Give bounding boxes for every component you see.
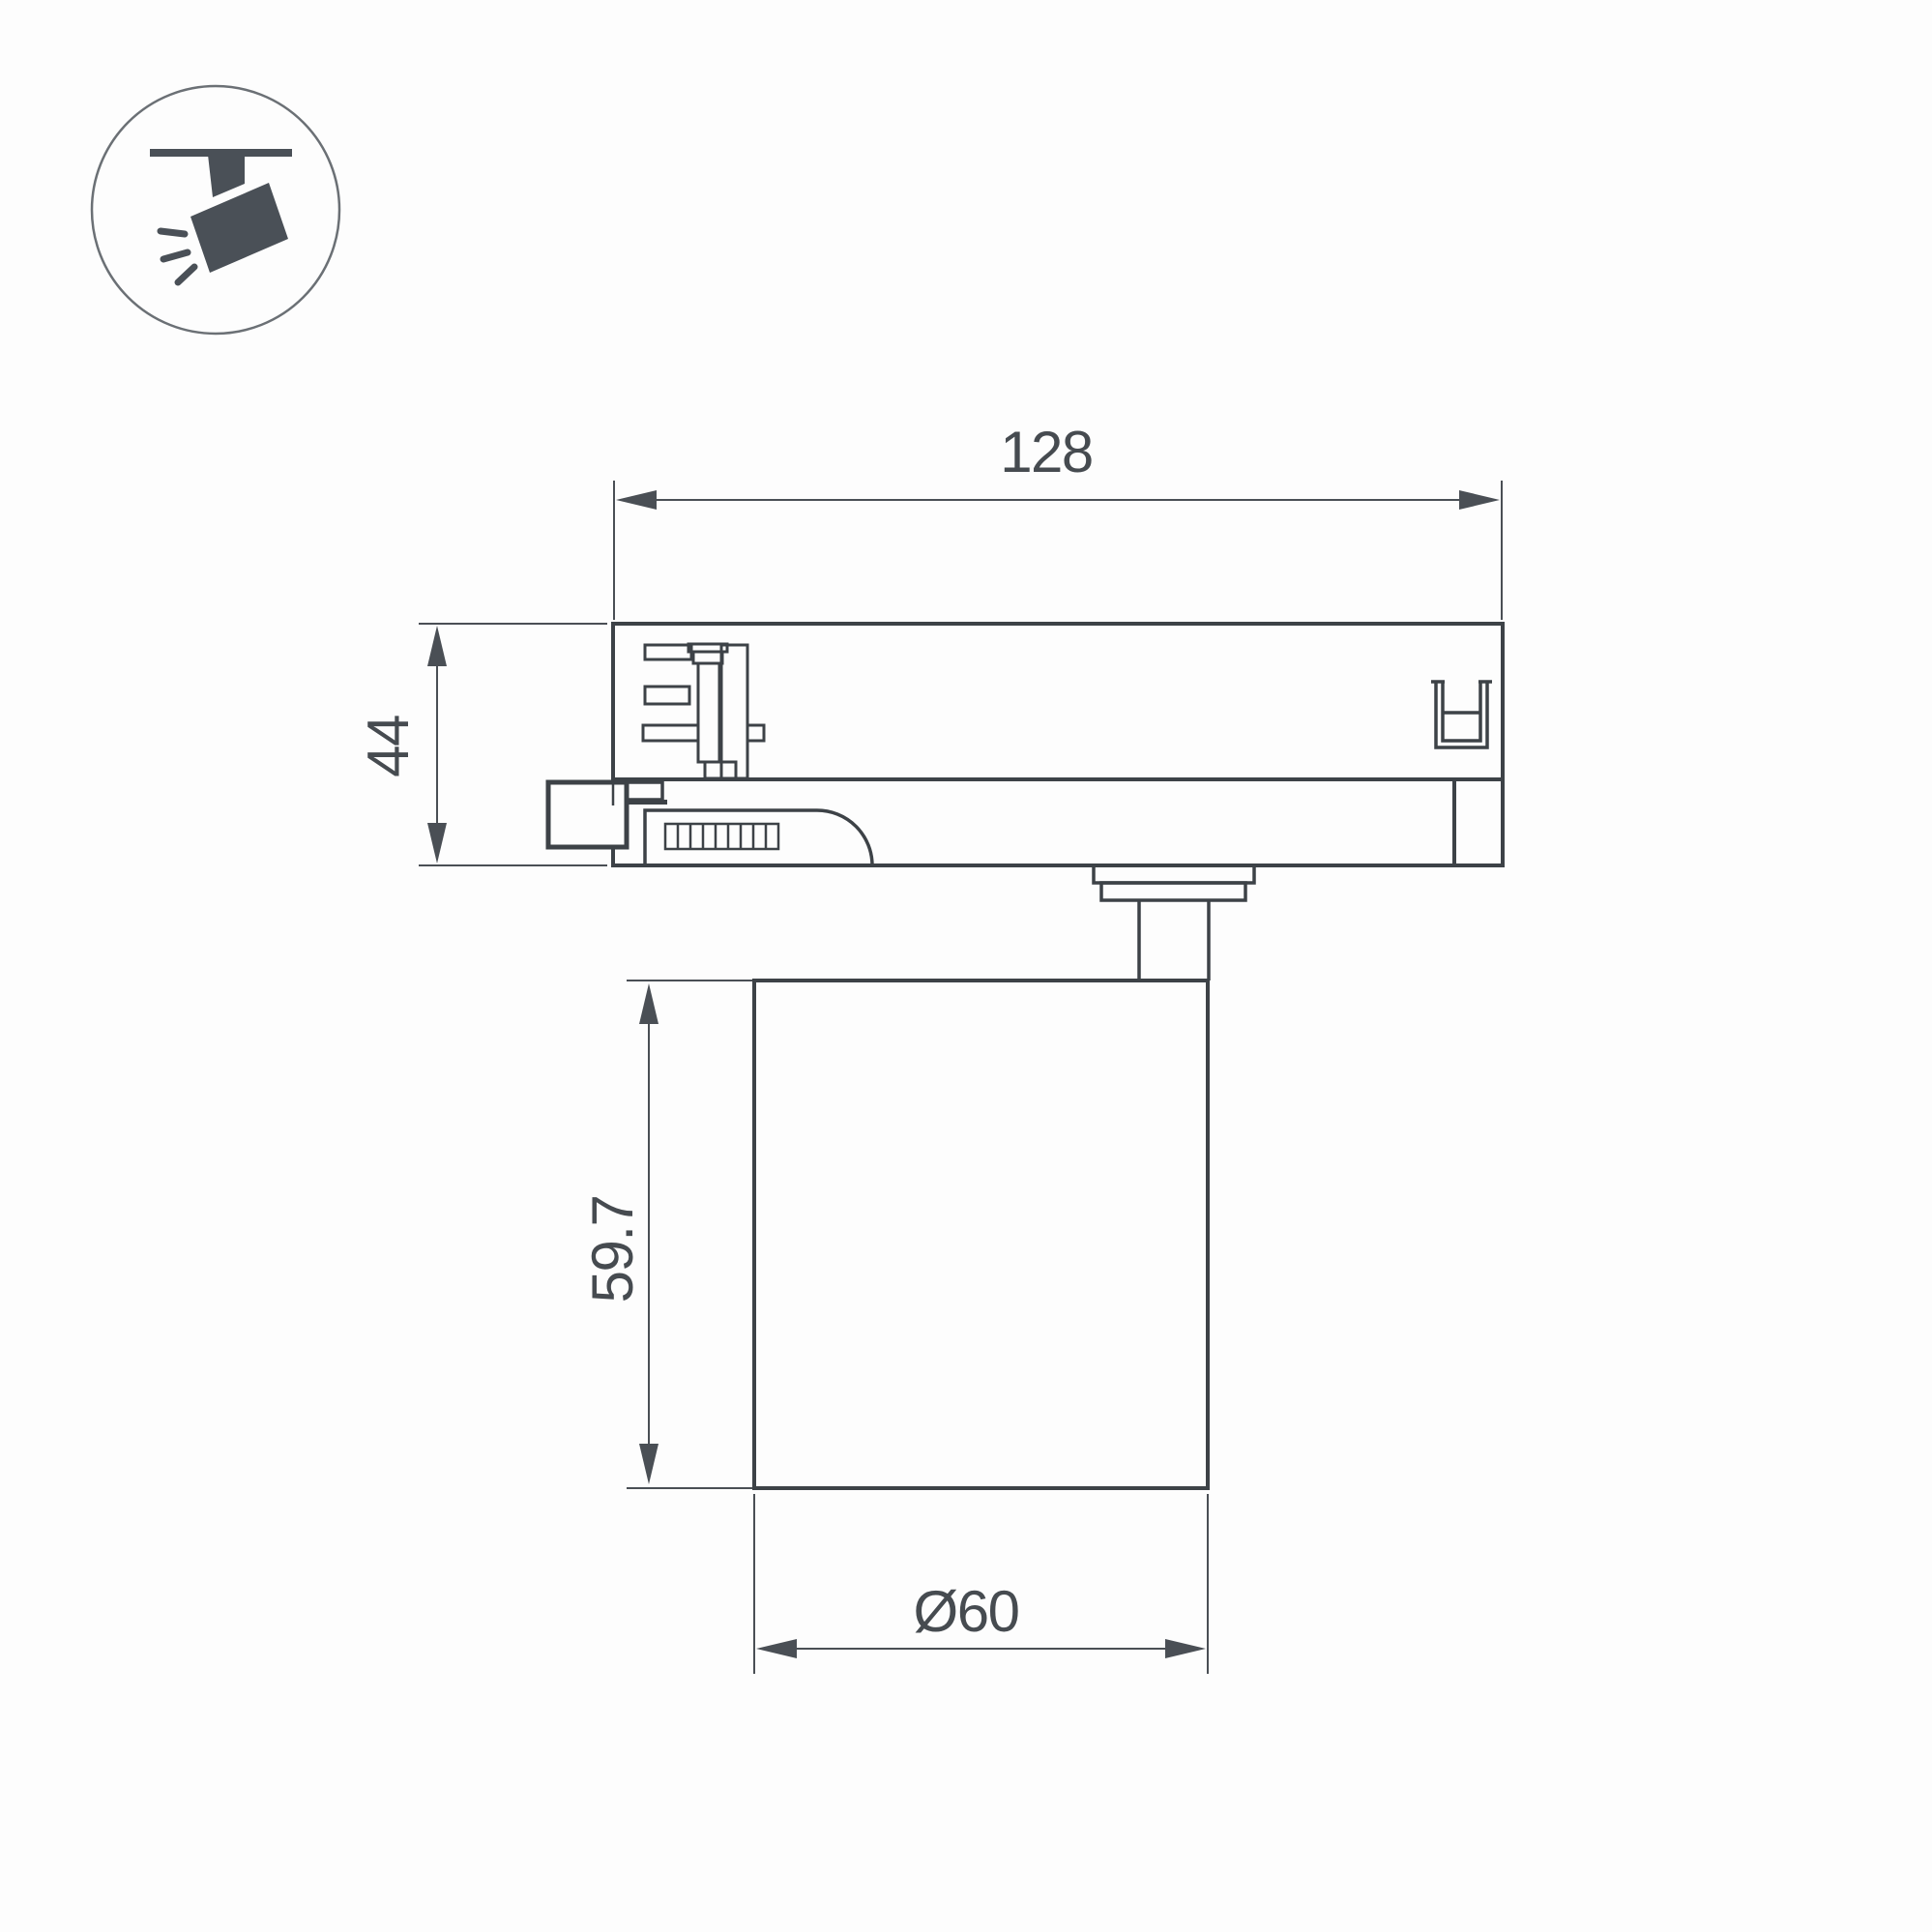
arrowhead-right	[1165, 1639, 1206, 1658]
dimension-label-body-height: 59.7	[580, 1196, 645, 1303]
arrowhead-down	[639, 1444, 659, 1484]
dimension-label-adapter-width: 128	[1000, 420, 1093, 484]
arrowhead-up	[639, 983, 659, 1024]
contact-tooth	[645, 687, 689, 704]
adapter-plate	[613, 779, 1503, 865]
contact-tooth	[747, 725, 764, 741]
latch-bar	[627, 800, 667, 805]
dimension-body-diameter: Ø60	[754, 1494, 1208, 1674]
screw-cap	[693, 652, 722, 663]
latch-notch	[627, 782, 662, 800]
flange-tier	[1101, 883, 1245, 900]
contact-block	[643, 644, 764, 778]
dimension-lines	[614, 481, 1502, 620]
dimension-label-body-diameter: Ø60	[914, 1579, 1019, 1644]
dimension-body-height: 59.7	[580, 981, 752, 1488]
mounting-flange	[1094, 865, 1254, 981]
dimension-label-adapter-height: 44	[356, 716, 421, 777]
arrowhead-left	[756, 1639, 797, 1658]
flange-tier	[1094, 865, 1254, 883]
lamp-cylinder	[754, 981, 1208, 1488]
arrowhead-left	[616, 490, 657, 510]
latch-body	[548, 782, 627, 847]
drawing-page: 128 44 59.7 Ø60	[0, 0, 1932, 1932]
technical-drawing: 128 44 59.7 Ø60	[0, 0, 1932, 1932]
track-adapter	[548, 624, 1503, 981]
arrowhead-up	[427, 626, 447, 666]
ribbed-grip	[665, 824, 778, 849]
arrowhead-right	[1459, 490, 1500, 510]
contact-tooth	[645, 645, 691, 659]
dimension-lines	[627, 981, 752, 1488]
contact-column	[721, 645, 747, 778]
screw-shaft	[698, 663, 719, 762]
contact-tooth	[643, 725, 698, 741]
release-latch	[548, 782, 667, 847]
track-spotlight-icon	[92, 86, 339, 334]
dimension-adapter-width: 128	[614, 420, 1502, 620]
arrowhead-down	[427, 823, 447, 864]
ground-clip	[1431, 682, 1492, 747]
grip-frame	[665, 824, 778, 849]
rounded-cover	[645, 810, 872, 865]
